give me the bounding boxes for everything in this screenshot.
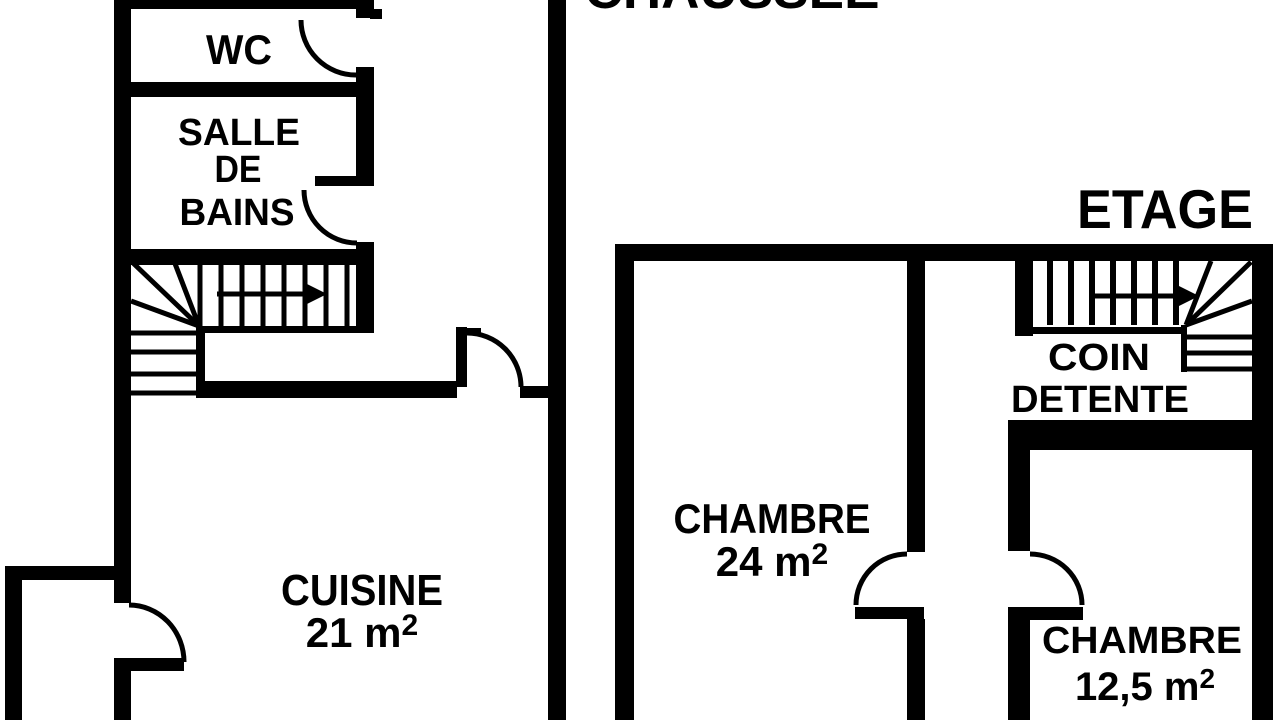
svg-text:DE: DE: [215, 149, 262, 191]
svg-text:ETAGE: ETAGE: [1077, 178, 1253, 240]
svg-text:CHAMBRE: CHAMBRE: [1042, 620, 1242, 662]
svg-text:SALLE: SALLE: [178, 112, 300, 154]
svg-text:21 m2: 21 m2: [306, 609, 418, 656]
svg-text:CUISINE: CUISINE: [281, 566, 443, 615]
svg-text:COIN: COIN: [1048, 337, 1150, 379]
svg-text:WC: WC: [206, 26, 272, 73]
svg-text:BAINS: BAINS: [180, 192, 295, 234]
svg-text:DETENTE: DETENTE: [1011, 379, 1189, 421]
svg-text:CHAMBRE: CHAMBRE: [674, 495, 871, 542]
svg-text:12,5 m2: 12,5 m2: [1075, 663, 1215, 709]
svg-text:CHAUSSEE: CHAUSSEE: [585, 0, 880, 20]
svg-text:24 m2: 24 m2: [716, 538, 828, 585]
